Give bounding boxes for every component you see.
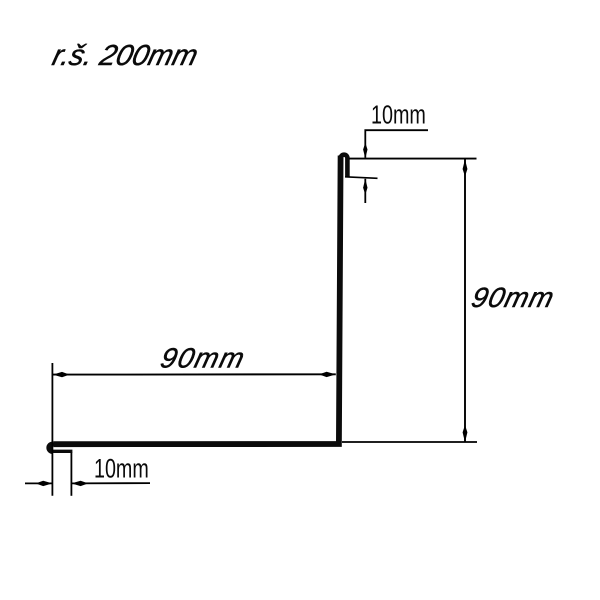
svg-text:90mm: 90mm bbox=[468, 282, 558, 314]
svg-text:10mm: 10mm bbox=[371, 100, 426, 129]
svg-text:90mm: 90mm bbox=[157, 343, 249, 375]
svg-text:r.š. 200mm: r.š. 200mm bbox=[49, 39, 201, 71]
svg-text:10mm: 10mm bbox=[94, 455, 149, 485]
